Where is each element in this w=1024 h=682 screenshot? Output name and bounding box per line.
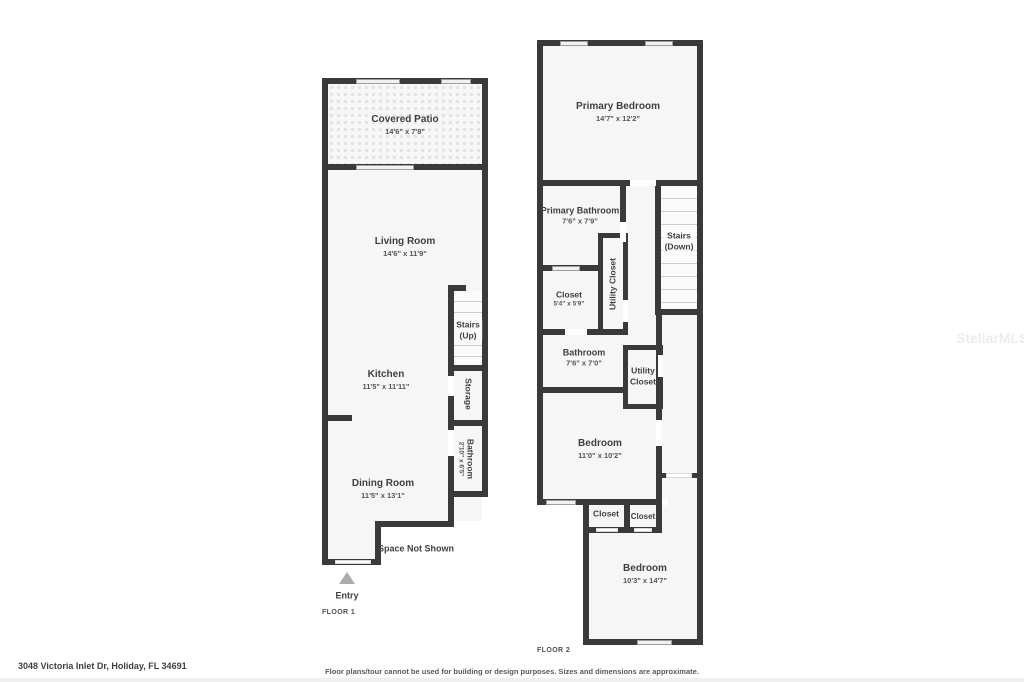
wall [697, 40, 703, 645]
window [356, 79, 400, 84]
covered-patio-label: Covered Patio 14'6" x 7'8" [371, 114, 438, 136]
wall [482, 78, 488, 497]
door-opening [656, 420, 662, 446]
wall [537, 40, 543, 505]
bedroom-bottom-label: Bedroom 10'3" x 14'7" [623, 563, 667, 585]
floor2-area-patch [668, 499, 697, 505]
entry-area [328, 521, 375, 559]
utility-closet-lower-label: Utility Closet [630, 365, 656, 386]
door-opening [620, 222, 626, 242]
kitchen-label: Kitchen 11'5" x 11'11" [363, 369, 410, 391]
wall [598, 233, 603, 334]
space-not-shown-label: Space Not Shown [378, 543, 454, 554]
floor2-tag: FLOOR 2 [537, 647, 570, 654]
wall [655, 309, 703, 315]
window [356, 165, 414, 170]
wall [448, 491, 488, 497]
wall [448, 365, 488, 371]
closet-right-label: Closet [631, 512, 655, 522]
bathroom1-label: Bathroom 2'10" x 6'5" [457, 439, 476, 479]
window [546, 500, 576, 505]
window [645, 41, 673, 46]
primary-bathroom-label: Primary Bathroom 7'6" x 7'9" [541, 206, 620, 227]
bathroom2-label: Bathroom 7'6" x 7'0" [563, 348, 606, 369]
door-opening [565, 329, 587, 335]
floor1-tag: FLOOR 1 [322, 609, 355, 616]
wall [583, 505, 589, 645]
door-opening [623, 300, 628, 322]
living-room-label: Living Room 14'6" x 11'9" [375, 236, 436, 258]
bedroom-middle-label: Bedroom 11'0" x 10'2" [578, 438, 622, 460]
entry-door-opening [335, 560, 371, 564]
closet-upper-label: Closet 5'4" x 5'9" [554, 290, 585, 309]
floorplan-image: Covered Patio 14'6" x 7'8" Living Room 1… [0, 0, 1024, 682]
window [560, 41, 588, 46]
dining-room-label: Dining Room 11'5" x 13'1" [352, 478, 414, 500]
entry-label: Entry [335, 590, 358, 601]
stellar-mls-watermark: StellarMLS [956, 330, 1024, 346]
wall [322, 78, 328, 565]
window [441, 79, 471, 84]
door-opening [658, 355, 663, 377]
wall [656, 478, 662, 533]
door-opening [596, 528, 618, 532]
stairs-down-label: Stairs (Down) [663, 230, 696, 251]
closet-left-label: Closet [593, 509, 619, 520]
utility-closet-upper-label: Utility Closet [608, 258, 619, 310]
door-opening [448, 376, 454, 396]
storage-label: Storage [463, 378, 474, 410]
primary-bedroom-label: Primary Bedroom 14'7" x 12'2" [576, 101, 660, 123]
door-opening [630, 180, 656, 186]
window [637, 640, 672, 645]
wall [537, 387, 626, 393]
door-opening [634, 528, 652, 532]
wall [623, 345, 628, 409]
entry-arrow-icon [339, 572, 355, 584]
wall [375, 521, 454, 527]
window [552, 266, 580, 271]
wall [322, 415, 352, 421]
door-opening [666, 473, 692, 478]
disclaimer-text: Floor plans/tour cannot be used for buil… [0, 667, 1024, 676]
wall [448, 420, 488, 426]
door-opening [448, 430, 454, 456]
stairs-up-label: Stairs (Up) [454, 319, 482, 340]
wall [656, 315, 662, 473]
bottom-strip [0, 678, 1024, 682]
